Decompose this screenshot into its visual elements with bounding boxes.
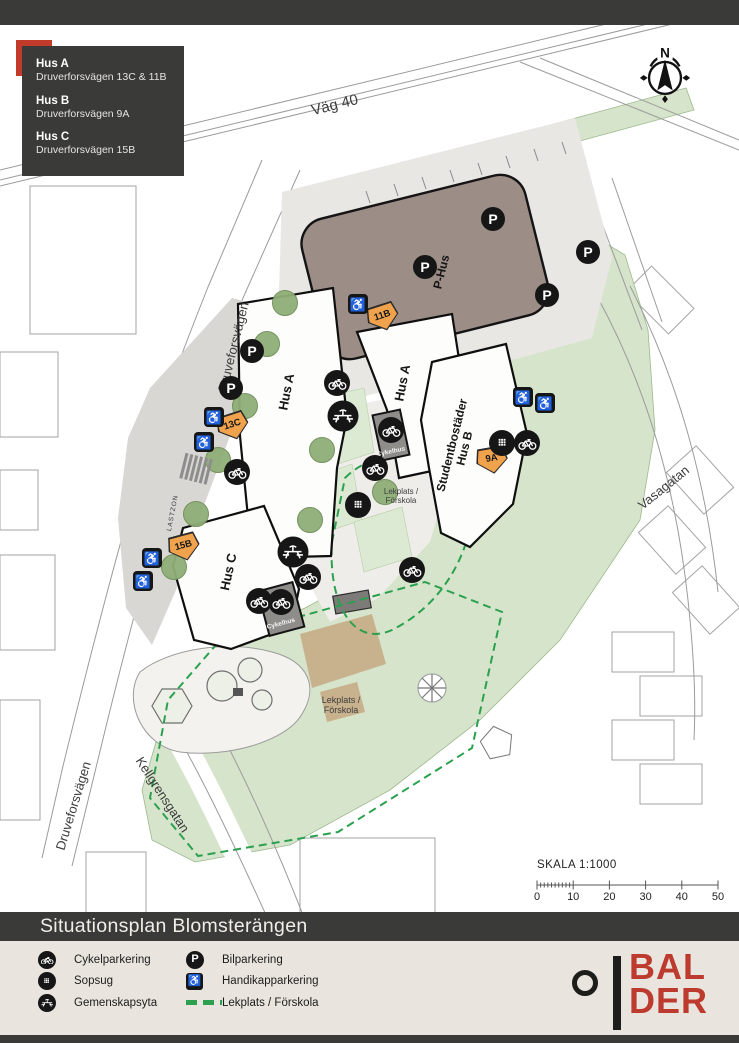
- scale-tick-0: 0: [534, 891, 540, 903]
- bilparkering-icon: P: [186, 951, 204, 969]
- top-strip: [0, 0, 739, 25]
- site-plan-page: Väg 40DruveforsvägenDruveforsvägenKellgr…: [0, 0, 739, 1043]
- legend-label: Handikapparkering: [222, 975, 319, 987]
- scale-tick-30: 30: [639, 891, 651, 903]
- building-address-box: Hus ADruverforsvägen 13C & 11BHus BDruve…: [22, 46, 184, 176]
- address-box-street: Druverforsvägen 15B: [36, 144, 172, 157]
- legend-item-lekplats: Lekplats / Förskola: [186, 994, 319, 1011]
- legend-column-left: CykelparkeringSopsugGemenskapsyta: [38, 951, 157, 1016]
- handikapparkering-icon: ♿: [186, 973, 203, 990]
- sopsug-icon: [38, 972, 56, 990]
- compass: N: [636, 44, 694, 111]
- tree-icon: [184, 502, 209, 527]
- title-bar: Situationsplan Blomsterängen: [0, 912, 739, 941]
- legend-item-cykelparkering: Cykelparkering: [38, 951, 157, 968]
- tree-icon: [310, 438, 335, 463]
- address-box-item: Hus CDruverforsvägen 15B: [36, 130, 172, 158]
- balder-line2: DER: [629, 984, 708, 1018]
- address-box-item: Hus ADruverforsvägen 13C & 11B: [36, 57, 172, 85]
- balder-line1: BAL: [629, 950, 708, 984]
- tree-icon: [298, 508, 323, 533]
- handikapparkering-glyph: ♿: [188, 976, 202, 987]
- legend-item-sopsug: Sopsug: [38, 973, 157, 990]
- tree-icon: [373, 480, 398, 505]
- legend-icon-slot: [186, 1000, 222, 1005]
- legend-icon-slot: [38, 994, 74, 1012]
- address-box-hus-name: Hus A: [36, 57, 172, 71]
- legend-label: Bilparkering: [222, 954, 283, 966]
- address-box-street: Druverforsvägen 9A: [36, 108, 172, 121]
- tree-icon: [162, 555, 187, 580]
- legend-label: Cykelparkering: [74, 954, 151, 966]
- lekplats-icon: [186, 1000, 222, 1005]
- address-box-hus-name: Hus C: [36, 130, 172, 144]
- legend-label: Sopsug: [74, 975, 113, 987]
- legend-icon-slot: [38, 951, 74, 969]
- balder-wordmark: BAL DER: [629, 950, 708, 1018]
- scale-bar: [535, 878, 725, 892]
- compass-n-label: N: [660, 46, 670, 61]
- legend-label: Gemenskapsyta: [74, 997, 157, 1009]
- scale-title: SKALA 1:1000: [537, 859, 617, 871]
- legend-column-right: PBilparkering♿HandikapparkeringLekplats …: [186, 951, 319, 1016]
- bilparkering-glyph: P: [191, 954, 198, 965]
- balder-logo: BAL DER: [565, 948, 737, 1034]
- legend-item-handikapparkering: ♿Handikapparkering: [186, 973, 319, 990]
- gemenskapsyta-icon: [38, 994, 56, 1012]
- legend-icon-slot: ♿: [186, 973, 222, 990]
- address-box-street: Druverforsvägen 13C & 11B: [36, 71, 172, 84]
- scale-tick-20: 20: [603, 891, 615, 903]
- legend-label: Lekplats / Förskola: [222, 997, 319, 1009]
- legend-icon-slot: P: [186, 951, 222, 969]
- address-box-item: Hus BDruverforsvägen 9A: [36, 94, 172, 122]
- legend-item-gemenskapsyta: Gemenskapsyta: [38, 994, 157, 1011]
- legend-item-bilparkering: PBilparkering: [186, 951, 319, 968]
- scale-tick-50: 50: [712, 891, 724, 903]
- tree-icon: [273, 291, 298, 316]
- bottom-strip: [0, 1035, 739, 1043]
- balder-bar-icon: [613, 956, 621, 1030]
- legend-icon-slot: [38, 972, 74, 990]
- compass-icon: N: [636, 44, 694, 106]
- scale-tick-10: 10: [567, 891, 579, 903]
- address-box-hus-name: Hus B: [36, 94, 172, 108]
- cykelparkering-icon: [38, 951, 56, 969]
- scale-tick-40: 40: [676, 891, 688, 903]
- page-title: Situationsplan Blomsterängen: [40, 915, 307, 938]
- tree-icon: [255, 332, 280, 357]
- balder-ring-icon: [572, 970, 598, 996]
- tree-icon: [233, 394, 258, 419]
